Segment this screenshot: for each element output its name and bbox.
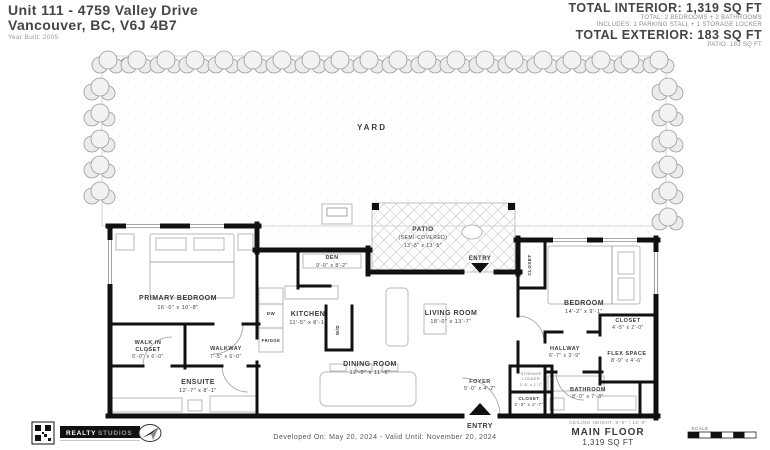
window [652, 252, 660, 294]
room-label: KITCHEN [291, 311, 326, 318]
room-label: WALK IN [135, 340, 162, 346]
room-dims: 7'-5" x 6'-0" [210, 354, 242, 360]
bed-pillow [618, 278, 634, 300]
bbq-grill [322, 204, 352, 224]
yard-area [102, 56, 666, 226]
room-label: PRIMARY BEDROOM [139, 295, 217, 302]
window [106, 240, 114, 284]
ensuite-toilet [188, 400, 202, 411]
window [603, 236, 637, 244]
dishwasher-label: DW [267, 311, 276, 316]
scale-bar: SCALE [688, 426, 756, 438]
fridge-label: FRIDGE [262, 338, 281, 343]
window [126, 222, 160, 230]
room-dims: 12'-0" x 11'-6" [350, 370, 391, 376]
compass-icon [139, 425, 161, 442]
room-label: WALKWAY [210, 346, 242, 352]
main-entry-label: ENTRY [467, 423, 493, 430]
room-dims: 2'-0" x 2'-7" [514, 402, 543, 407]
hedge-row-top [92, 51, 674, 73]
patio-label: PATIO [412, 226, 433, 233]
qr-code [32, 422, 54, 444]
room-dims: 9'-0" x 8'-2" [316, 263, 348, 269]
bedroom-closet-label: CLOSET [527, 254, 532, 275]
storage-label-2: LOCKER [522, 376, 540, 381]
window [190, 222, 224, 230]
room-dims: 18'-0" x 13'-7" [430, 319, 471, 325]
floor-area: 1,319 SQ FT [582, 438, 633, 447]
floorplan-page: { "header": { "address_line1": "Unit 111… [0, 0, 770, 450]
room-dims: 5'-0" x 4'-2" [464, 386, 496, 392]
room-dims: 11'-5" x 8'-1" [289, 320, 326, 326]
room-dims: 12'-7" x 8'-1" [179, 388, 217, 394]
patio-entry-label: ENTRY [469, 256, 492, 262]
kitchen-counter-top [285, 286, 338, 299]
floor-name: MAIN FLOOR [571, 427, 644, 438]
dining-table [320, 372, 416, 406]
room-label: BATHROOM [570, 387, 606, 393]
room-dims: 4'-5" x 2'-0" [612, 325, 644, 331]
ensuite-tub [210, 396, 256, 412]
nightstand [116, 234, 134, 250]
yard-label: YARD [357, 123, 387, 132]
room-label: DINING ROOM [343, 361, 397, 368]
bed-pillow [618, 252, 634, 274]
room-dims: 14'-2" x 9'-1" [565, 309, 603, 315]
brand-logo: REALTY STUDIOS [60, 426, 140, 441]
room-dims: 6'-7" x 3'-9" [549, 353, 581, 359]
room-label: CLOSET [135, 347, 160, 353]
storage-dims: 2'-5" x 2'-7" [520, 382, 543, 387]
room-label: CLOSET [615, 318, 640, 324]
room-label: FLEX SPACE [607, 351, 646, 357]
room-dims: 6'-0" x 6'-0" [132, 354, 164, 360]
room-label: FOYER [469, 379, 490, 385]
room-label: DEN [325, 255, 338, 261]
scale-label: SCALE [691, 426, 708, 431]
ensuite-vanity [112, 398, 182, 412]
sofa [386, 288, 408, 346]
room-label: LIVING ROOM [425, 310, 478, 317]
patio-sub-label: (SEMI-COVERED) [399, 235, 448, 241]
nightstand [238, 234, 253, 250]
room-label: HALLWAY [550, 346, 580, 352]
room-dims: 16'-0" x 10'-8" [157, 305, 198, 311]
patio-dims: 13'-5" x 13'-5" [404, 243, 442, 249]
room-dims: 8'-9" x 4'-6" [611, 358, 643, 364]
floorplan-canvas: ENTRY ENTRY YARD PATIO (SEMI-COVERED) 13… [0, 0, 770, 450]
room-label: CLOSET [518, 396, 539, 401]
logo-text-1: REALTY [66, 430, 96, 437]
logo-text-2: STUDIOS [98, 430, 133, 437]
ceiling-height: CEILING HEIGHT: 8'-0" / 14'-0" [569, 420, 646, 425]
room-label: BEDROOM [564, 300, 604, 307]
floor-summary: CEILING HEIGHT: 8'-0" / 14'-0" MAIN FLOO… [569, 420, 646, 447]
room-dims: 8'-0" x 7'-3" [572, 394, 604, 400]
window [553, 236, 587, 244]
bed-pillow [194, 238, 224, 250]
patio-table [462, 225, 482, 239]
developed-date-line: Developed On: May 20, 2024 - Valid Until… [273, 434, 496, 441]
room-label: ENSUITE [181, 379, 215, 386]
washer-dryer-label: W/D [335, 325, 340, 335]
bed-pillow [156, 238, 186, 250]
logo-tagline-rule [60, 440, 140, 441]
